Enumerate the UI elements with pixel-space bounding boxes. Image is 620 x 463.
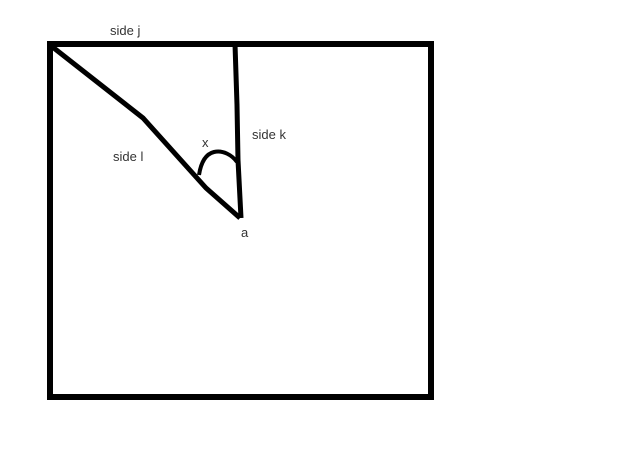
angle-arc [199, 152, 237, 175]
label-side-k: side k [252, 127, 286, 142]
geometry-figure: side j side k side l x a [0, 0, 620, 463]
side-k-vertical-line [235, 44, 241, 218]
side-l-diagonal-line [50, 45, 240, 218]
label-side-j: side j [110, 23, 140, 38]
label-vertex-a: a [241, 225, 249, 240]
label-angle-x: x [202, 135, 209, 150]
drawing-canvas: side j side k side l x a [0, 0, 620, 463]
square-outline [50, 44, 431, 397]
label-side-l: side l [113, 149, 143, 164]
